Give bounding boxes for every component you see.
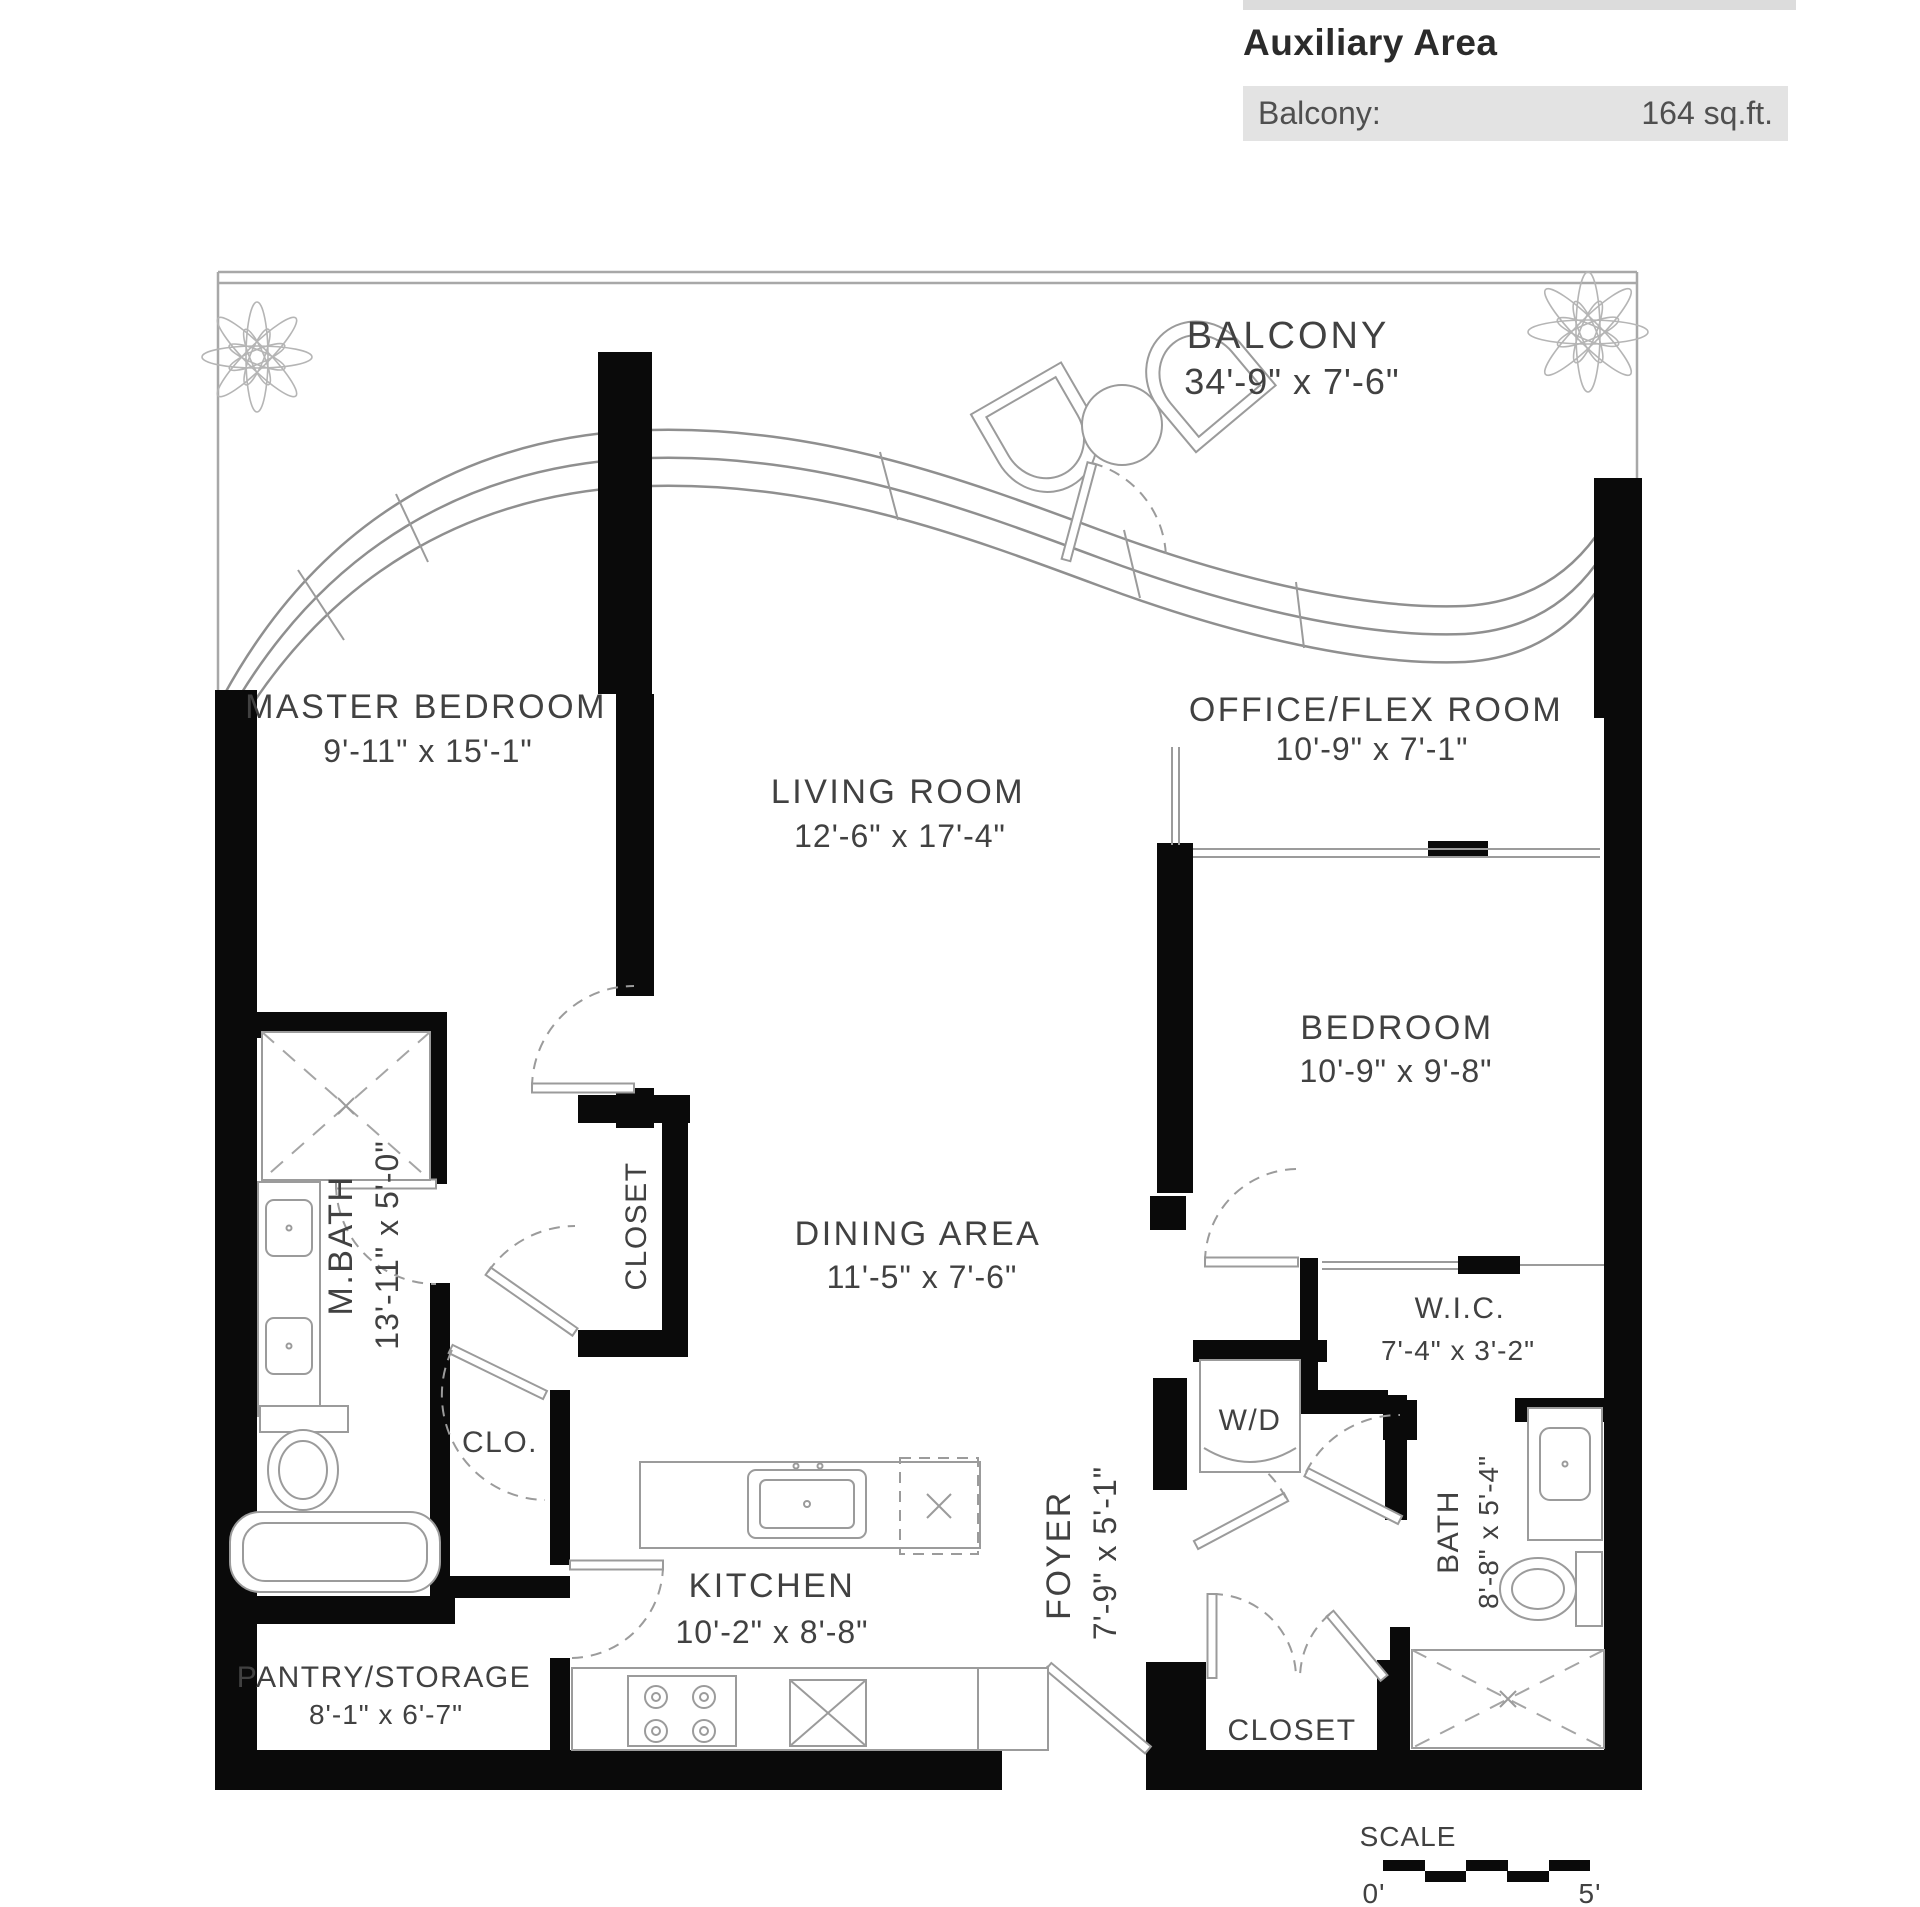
master-closet-label: CLOSET: [620, 1161, 653, 1290]
living-room-label: LIVING ROOM: [771, 773, 1025, 811]
dining-area-label: DINING AREA: [795, 1215, 1042, 1253]
balcony-table: [1082, 385, 1162, 465]
kitchen-dims: 10'-2" x 8'-8": [675, 1614, 868, 1650]
office-flex-dims: 10'-9" x 7'-1": [1275, 731, 1468, 767]
pantry-label: PANTRY/STORAGE: [237, 1661, 531, 1694]
wic-label: W.I.C.: [1415, 1292, 1506, 1325]
bath-fixtures: [1412, 1408, 1604, 1748]
master-bath-dims: 13'-11" x 5'-0": [369, 1140, 405, 1349]
balcony-boundary: [218, 272, 1637, 700]
kitchen-label: KITCHEN: [689, 1567, 856, 1605]
balcony-label: BALCONY: [1187, 315, 1390, 357]
plant-icon: [1528, 272, 1648, 392]
scale-end: 5': [1579, 1878, 1602, 1907]
washer-dryer-label: W/D: [1219, 1404, 1282, 1437]
living-room-dims: 12'-6" x 17'-4": [794, 818, 1006, 854]
foyer-dims: 7'-9" x 5'-1": [1087, 1466, 1123, 1640]
bedroom-label: BEDROOM: [1300, 1009, 1493, 1047]
balcony-dims: 34'-9" x 7'-6": [1184, 361, 1399, 402]
master-bath-label: M.BATH: [322, 1175, 360, 1316]
scale-start: 0': [1363, 1878, 1386, 1907]
master-bedroom-label: MASTER BEDROOM: [245, 688, 607, 726]
scale-label: SCALE: [1360, 1821, 1457, 1852]
clo-label: CLO.: [462, 1426, 538, 1459]
pantry-dims: 8'-1" x 6'-7": [309, 1699, 463, 1730]
bedroom-dims: 10'-9" x 9'-8": [1299, 1053, 1492, 1089]
floor-plan-page: Auxiliary Area Balcony: 164 sq.ft.: [0, 0, 1920, 1907]
floor-plan-drawing: BALCONY 34'-9" x 7'-6" MASTER BEDROOM 9'…: [0, 0, 1920, 1907]
wic-dims: 7'-4" x 3'-2": [1381, 1335, 1535, 1366]
scale-bar: SCALE 0' 5': [1360, 1821, 1602, 1907]
dining-area-dims: 11'-5" x 7'-6": [827, 1259, 1018, 1295]
foyer-closet-label: CLOSET: [1227, 1714, 1356, 1747]
foyer-label: FOYER: [1040, 1490, 1078, 1620]
office-flex-label: OFFICE/FLEX ROOM: [1189, 691, 1563, 729]
master-bedroom-dims: 9'-11" x 15'-1": [323, 733, 532, 769]
doors: [336, 462, 1402, 1753]
bath-dims: 8'-8" x 5'-4": [1473, 1455, 1504, 1609]
bath-label: BATH: [1432, 1490, 1465, 1574]
